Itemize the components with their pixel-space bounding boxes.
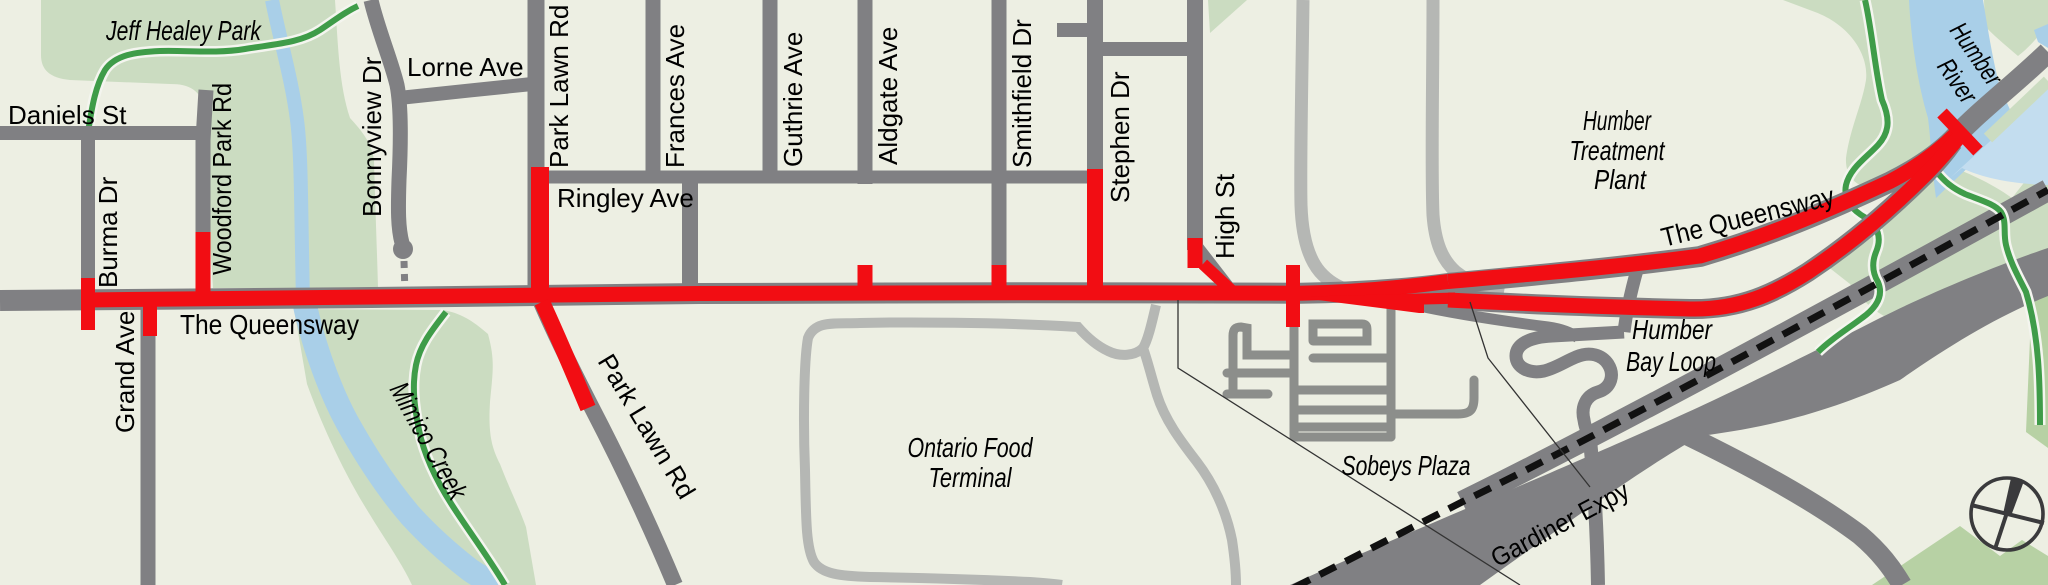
svg-text:Bay Loop: Bay Loop xyxy=(1626,346,1716,377)
svg-text:Ontario Food: Ontario Food xyxy=(908,432,1034,463)
svg-text:Jeff Healey Park: Jeff Healey Park xyxy=(105,15,262,46)
svg-text:Terminal: Terminal xyxy=(929,462,1013,493)
svg-text:Guthrie Ave: Guthrie Ave xyxy=(778,32,808,167)
svg-text:Treatment: Treatment xyxy=(1570,135,1666,166)
svg-text:Aldgate Ave: Aldgate Ave xyxy=(873,27,903,165)
svg-text:High St: High St xyxy=(1210,173,1240,259)
svg-text:Smithfield Dr: Smithfield Dr xyxy=(1007,19,1037,168)
svg-text:Humber: Humber xyxy=(1583,105,1652,136)
svg-text:Daniels St: Daniels St xyxy=(8,100,127,130)
svg-text:Park Lawn Rd: Park Lawn Rd xyxy=(544,5,574,168)
svg-text:Humber: Humber xyxy=(1632,314,1713,345)
svg-text:Lorne Ave: Lorne Ave xyxy=(407,52,524,82)
svg-text:Stephen Dr: Stephen Dr xyxy=(1105,71,1135,203)
svg-text:Ringley Ave: Ringley Ave xyxy=(557,183,694,213)
svg-text:Plant: Plant xyxy=(1594,164,1647,195)
svg-text:Bonnyview Dr: Bonnyview Dr xyxy=(357,56,387,217)
svg-text:Grand Ave: Grand Ave xyxy=(110,311,140,433)
svg-text:The Queensway: The Queensway xyxy=(180,309,359,340)
svg-text:Woodford Park Rd: Woodford Park Rd xyxy=(207,83,237,275)
svg-text:Frances Ave: Frances Ave xyxy=(660,24,690,168)
svg-text:Burma Dr: Burma Dr xyxy=(93,176,123,288)
svg-text:Sobeys Plaza: Sobeys Plaza xyxy=(1342,450,1471,481)
